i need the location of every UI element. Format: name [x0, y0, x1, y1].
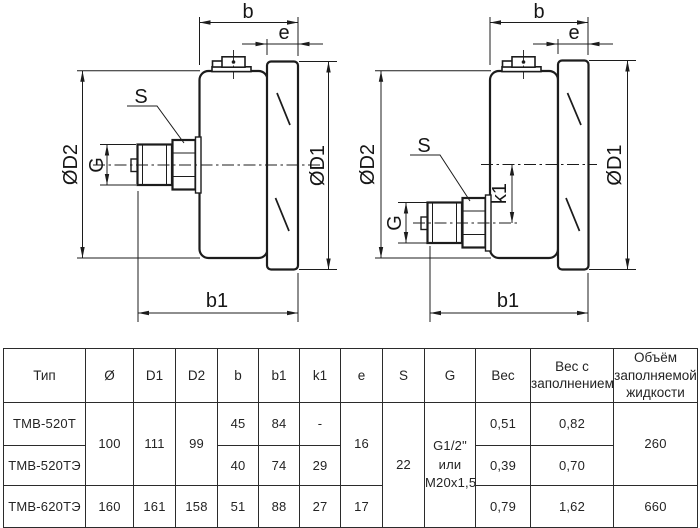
- header-diameter: Ø: [86, 349, 134, 403]
- cell-weight-filled: 0,82: [531, 402, 614, 445]
- cell-d1: 111: [134, 402, 176, 485]
- dim-b-label: b: [242, 1, 253, 23]
- dim-b1-label: b1: [206, 290, 228, 312]
- header-b1: b1: [259, 349, 300, 403]
- dim-s-label: S: [134, 86, 147, 108]
- cell-type: ТМВ-620ТЭ: [4, 485, 86, 527]
- cell-diameter: 160: [86, 485, 134, 527]
- cell-diameter: 100: [86, 402, 134, 485]
- cell-k1: -: [300, 402, 341, 445]
- cell-d2: 99: [176, 402, 218, 485]
- header-weight-filled: Вес с заполнением: [531, 349, 614, 403]
- cell-weight: 0,79: [476, 485, 531, 527]
- header-d1: D1: [134, 349, 176, 403]
- dim-e-label: e: [278, 22, 289, 44]
- header-s: S: [383, 349, 425, 403]
- dim-d1-label: ØD1: [604, 144, 626, 185]
- cell-k1: 27: [300, 485, 341, 527]
- cell-s: 22: [383, 402, 425, 527]
- cell-weight: 0,39: [476, 445, 531, 485]
- header-b: b: [218, 349, 259, 403]
- dim-b-label: b: [533, 1, 544, 23]
- cell-b: 40: [218, 445, 259, 485]
- cell-type: ТМВ-520Т: [4, 402, 86, 445]
- dim-e: e: [242, 22, 323, 55]
- cell-b1: 74: [259, 445, 300, 485]
- dim-d1-label: ØD1: [307, 145, 329, 186]
- dim-d2-label: ØD2: [60, 144, 82, 185]
- header-weight: Вес: [476, 349, 531, 403]
- dim-b1-label: b1: [497, 290, 519, 312]
- spec-table: Тип Ø D1 D2 b b1 k1 e S G Вес Вес с запо…: [3, 348, 698, 528]
- callout-s: S: [127, 86, 184, 143]
- dim-d1: ØD1: [589, 61, 636, 270]
- table-header-row: Тип Ø D1 D2 b b1 k1 e S G Вес Вес с запо…: [4, 349, 698, 403]
- callout-s: S: [410, 135, 470, 201]
- header-g: G: [425, 349, 476, 403]
- cell-b1: 88: [259, 485, 300, 527]
- cell-g: G1/2" или M20x1,5: [425, 402, 476, 527]
- header-d2: D2: [176, 349, 218, 403]
- cell-e: 17: [341, 485, 383, 527]
- dim-k1-label: k1: [489, 183, 511, 204]
- cell-weight: 0,51: [476, 402, 531, 445]
- dim-e: e: [533, 22, 613, 54]
- cell-d2: 158: [176, 485, 218, 527]
- cell-d1: 161: [134, 485, 176, 527]
- dim-d1: ØD1: [299, 62, 337, 270]
- dim-g-label: G: [384, 215, 406, 231]
- header-volume: Объём заполняемой жидкости: [614, 349, 698, 403]
- technical-drawing: b e ØD2 G ØD1: [0, 0, 700, 346]
- cell-k1: 29: [300, 445, 341, 485]
- cell-e: 16: [341, 402, 383, 485]
- cell-weight-filled: 0,70: [531, 445, 614, 485]
- cell-volume: 260: [614, 402, 698, 485]
- table-row: ТМВ-520Т 100 111 99 45 84 - 16 22 G1/2" …: [4, 402, 698, 445]
- header-k1: k1: [300, 349, 341, 403]
- right-view: b e ØD2 G k1: [357, 1, 636, 322]
- cell-b: 51: [218, 485, 259, 527]
- dim-e-label: e: [568, 22, 579, 44]
- cell-weight-filled: 1,62: [531, 485, 614, 527]
- dim-g-label: G: [86, 157, 108, 173]
- table-row: ТМВ-620ТЭ 160 161 158 51 88 27 17 0,79 1…: [4, 485, 698, 527]
- datasheet-page: b e ØD2 G ØD1: [0, 0, 700, 528]
- dim-s-label: S: [417, 135, 430, 157]
- case-body: [200, 71, 268, 258]
- header-e: e: [341, 349, 383, 403]
- cell-b1: 84: [259, 402, 300, 445]
- front-bezel: [267, 62, 298, 270]
- front-bezel: [558, 61, 589, 270]
- dim-d2-label: ØD2: [357, 144, 379, 185]
- cell-b: 45: [218, 402, 259, 445]
- cell-volume: 660: [614, 485, 698, 527]
- left-view: b e ØD2 G ØD1: [60, 1, 337, 322]
- cell-type: ТМВ-520ТЭ: [4, 445, 86, 485]
- header-type: Тип: [4, 349, 86, 403]
